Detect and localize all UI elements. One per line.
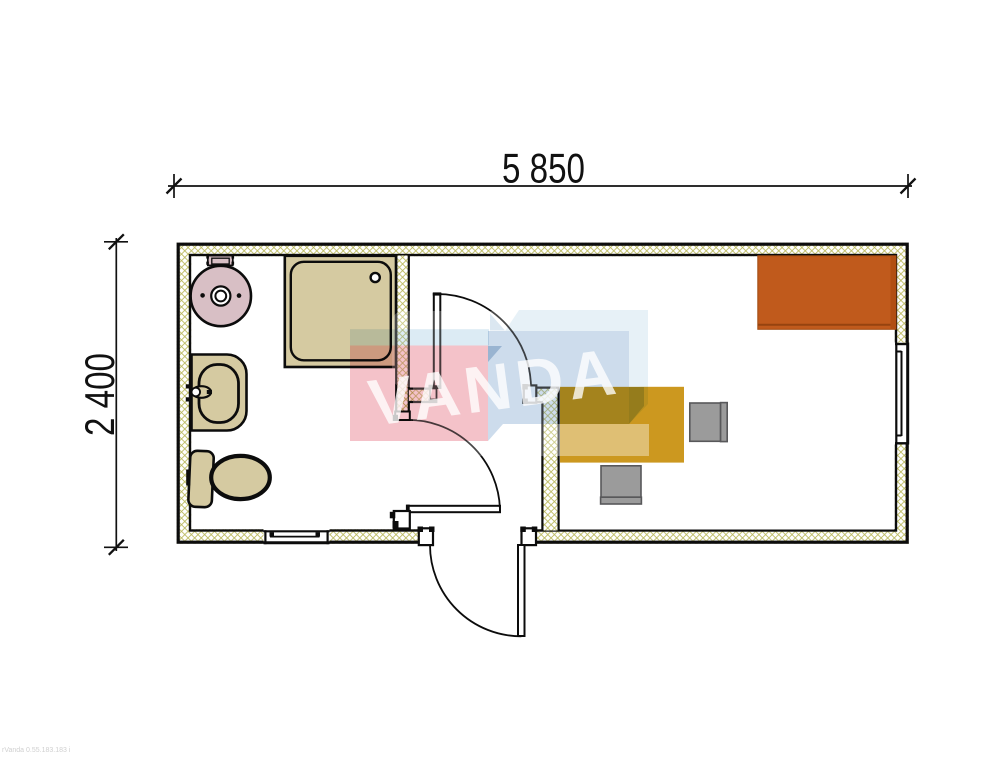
svg-text:2 400: 2 400 — [76, 353, 123, 436]
svg-text:5 850: 5 850 — [502, 145, 585, 192]
svg-text:rVanda 0.55.183.183 i: rVanda 0.55.183.183 i — [2, 747, 71, 754]
